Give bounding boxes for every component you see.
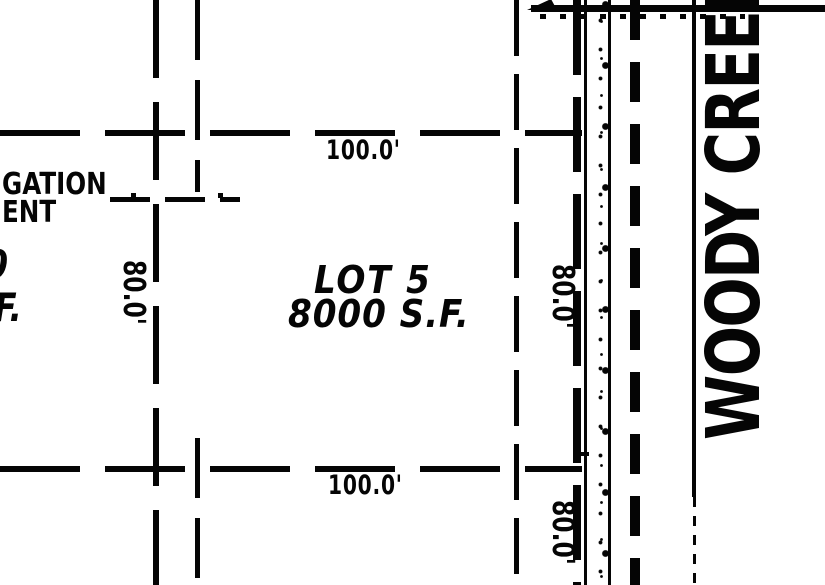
dimension-east-lower: 80.0' <box>547 500 577 565</box>
dimension-south: 100.0' <box>328 470 403 501</box>
dimension-north: 100.0' <box>326 135 401 166</box>
lot5-area-label: 8000 S.F. <box>288 292 470 336</box>
ditch-stipple-band <box>588 0 608 585</box>
dimension-west: 80.0' <box>118 260 148 325</box>
side-easement-line-south-segment <box>195 438 200 585</box>
dimension-east-upper: 80.0' <box>547 264 577 329</box>
easement-line-tick-left <box>131 193 136 198</box>
road-edge-jog <box>575 452 589 456</box>
left-lot-area-fragment-line1: 0 <box>0 243 8 288</box>
side-easement-line-north-segment <box>195 0 200 192</box>
street-name-label: WOODY CREEK <box>694 0 774 440</box>
left-lot-area-fragment-line2: F. <box>0 286 22 331</box>
lot-line-west <box>153 0 159 585</box>
lot-line-south <box>0 466 582 472</box>
lot-line-north <box>0 130 582 136</box>
easement-label-fragment-line2: ENT <box>2 195 56 230</box>
ditch-east-thin-line <box>608 0 611 585</box>
road-edge-east-dashed-tail <box>693 497 696 585</box>
road-edge-west-thin-line <box>584 0 587 585</box>
easement-line-tick-right <box>218 193 223 198</box>
top-boundary-line <box>531 5 825 12</box>
lot-line-east <box>514 0 519 585</box>
road-centerline <box>630 0 640 585</box>
plat-map: GATION ENT 0 F. 100.0' LOT 5 8000 S.F. 1… <box>0 0 825 585</box>
